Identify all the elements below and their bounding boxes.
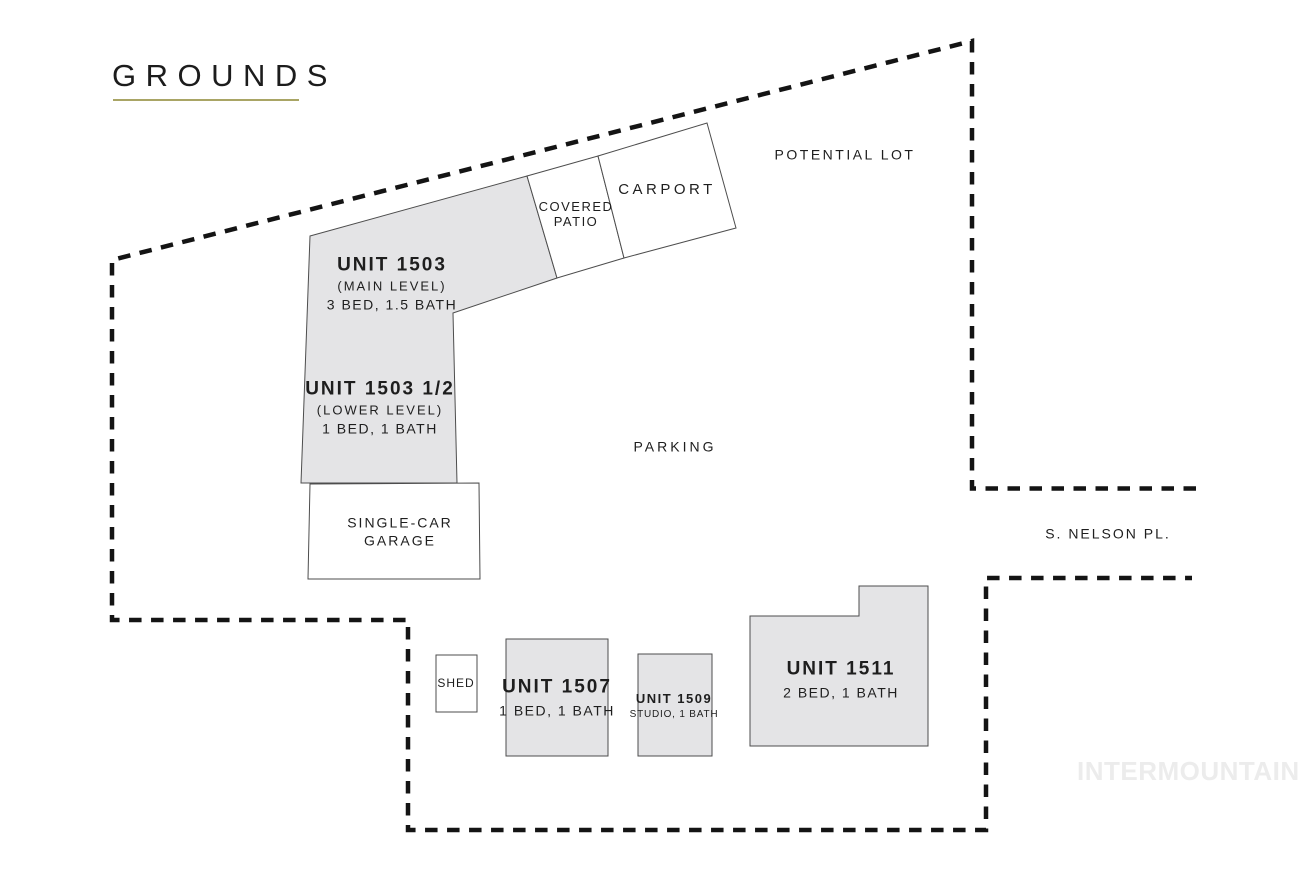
unit-1503-half-level: (LOWER LEVEL) bbox=[305, 402, 455, 418]
parking-label: PARKING bbox=[634, 439, 717, 456]
title-underline bbox=[113, 99, 299, 101]
carport-label: CARPORT bbox=[618, 181, 716, 199]
unit-1509-name: UNIT 1509 bbox=[630, 691, 719, 707]
unit-1511-name: UNIT 1511 bbox=[783, 659, 899, 682]
unit-1507-name: UNIT 1507 bbox=[499, 677, 615, 700]
unit-1511-specs: 2 BED, 1 BATH bbox=[783, 685, 899, 702]
unit-1509-specs: STUDIO, 1 BATH bbox=[630, 709, 719, 721]
garage-label: SINGLE-CAR GARAGE bbox=[347, 515, 453, 550]
unit-1503-specs: 3 BED, 1.5 BATH bbox=[327, 297, 457, 314]
grounds-site-plan: GROUNDS UNIT 1503 (MAIN LEVEL) 3 BED, 1.… bbox=[0, 0, 1310, 875]
site-plan-drawing bbox=[0, 0, 1310, 875]
unit-1503-half-label: UNIT 1503 1/2 (LOWER LEVEL) 1 BED, 1 BAT… bbox=[305, 378, 455, 437]
unit-1507-specs: 1 BED, 1 BATH bbox=[499, 703, 615, 720]
unit-1503-name: UNIT 1503 bbox=[327, 254, 457, 277]
unit-1503-level: (MAIN LEVEL) bbox=[327, 278, 457, 294]
garage-line1: SINGLE-CAR bbox=[347, 515, 453, 533]
shed-label: SHED bbox=[437, 676, 474, 690]
garage-line2: GARAGE bbox=[347, 532, 453, 550]
street-label: S. NELSON PL. bbox=[1045, 526, 1171, 543]
unit-1507-label: UNIT 1507 1 BED, 1 BATH bbox=[499, 677, 615, 720]
unit-1503-half-name: UNIT 1503 1/2 bbox=[305, 378, 455, 401]
covered-patio-line2: PATIO bbox=[539, 215, 614, 230]
unit-1503-label: UNIT 1503 (MAIN LEVEL) 3 BED, 1.5 BATH bbox=[327, 254, 457, 313]
unit-1511-label: UNIT 1511 2 BED, 1 BATH bbox=[783, 659, 899, 702]
page-title: GROUNDS bbox=[112, 58, 337, 94]
unit-1509-label: UNIT 1509 STUDIO, 1 BATH bbox=[630, 691, 719, 721]
intermountain-watermark: INTERMOUNTAIN bbox=[1077, 756, 1300, 787]
covered-patio-label: COVERED PATIO bbox=[539, 200, 614, 230]
potential-lot-label: POTENTIAL LOT bbox=[775, 147, 916, 164]
unit-1503-half-specs: 1 BED, 1 BATH bbox=[305, 421, 455, 438]
covered-patio-line1: COVERED bbox=[539, 200, 614, 215]
